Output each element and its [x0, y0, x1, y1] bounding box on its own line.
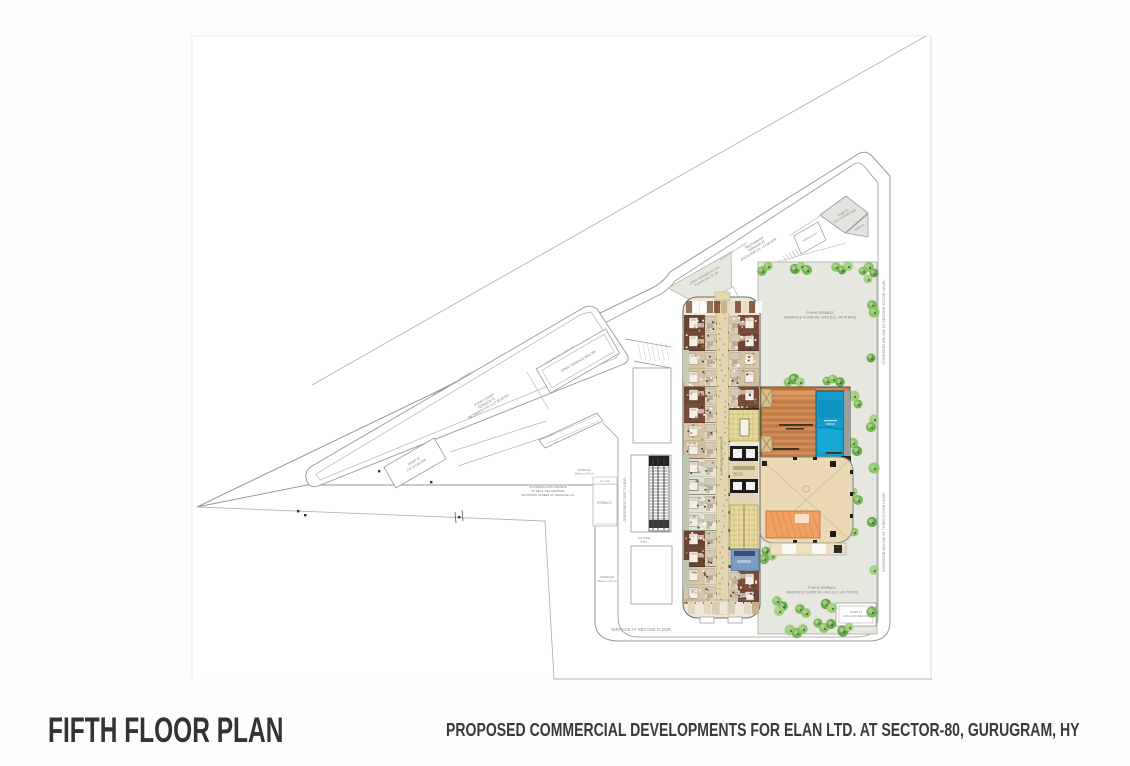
svg-text:CORRIDOR AT FIRST FLOOR: CORRIDOR AT FIRST FLOOR	[623, 477, 627, 521]
svg-text:TERRACE: TERRACE	[596, 501, 611, 505]
svg-text:CORRIDOR BELOW AT THIRD FLOOR: CORRIDOR BELOW AT THIRD FLOOR LEVEL	[882, 492, 886, 572]
svg-text:SHOPPING STREET AT TERRACE LVL: SHOPPING STREET AT TERRACE LVL	[521, 493, 575, 497]
svg-text:(COL+CHD BELOW): (COL+CHD BELOW)	[843, 614, 869, 618]
svg-text:W/SERVICE FLOOR LVL +24.5 (LVL: W/SERVICE FLOOR LVL +24.5 (LVL +24.75 MT…	[786, 591, 858, 595]
svg-text:TERRACE AT SECOND FLOOR: TERRACE AT SECOND FLOOR	[611, 627, 672, 632]
svg-text:(Balanced Roof): (Balanced Roof)	[575, 472, 594, 476]
svg-text:4m wide: 4m wide	[600, 479, 610, 483]
svg-text:W/SERVICE FLOOR LVL +24.5 (LVL: W/SERVICE FLOOR LVL +24.5 (LVL +24.75 MT…	[784, 316, 856, 320]
svg-text:CORRIDOR BELOW AT SECOND FLOOR: CORRIDOR BELOW AT SECOND FLOOR LEVEL	[882, 279, 886, 364]
svg-text:HOTEL ROOM CORRIDOR: HOTEL ROOM CORRIDOR	[720, 436, 724, 474]
svg-text:(Balanced Roof): (Balanced Roof)	[597, 579, 617, 583]
svg-text:P+M+M TERRACE: P+M+M TERRACE	[806, 311, 833, 315]
svg-text:P+M+M TERRACE: P+M+M TERRACE	[808, 586, 835, 590]
svg-text:TERRACE: TERRACE	[577, 468, 590, 472]
svg-text:WALL: WALL	[640, 540, 648, 544]
